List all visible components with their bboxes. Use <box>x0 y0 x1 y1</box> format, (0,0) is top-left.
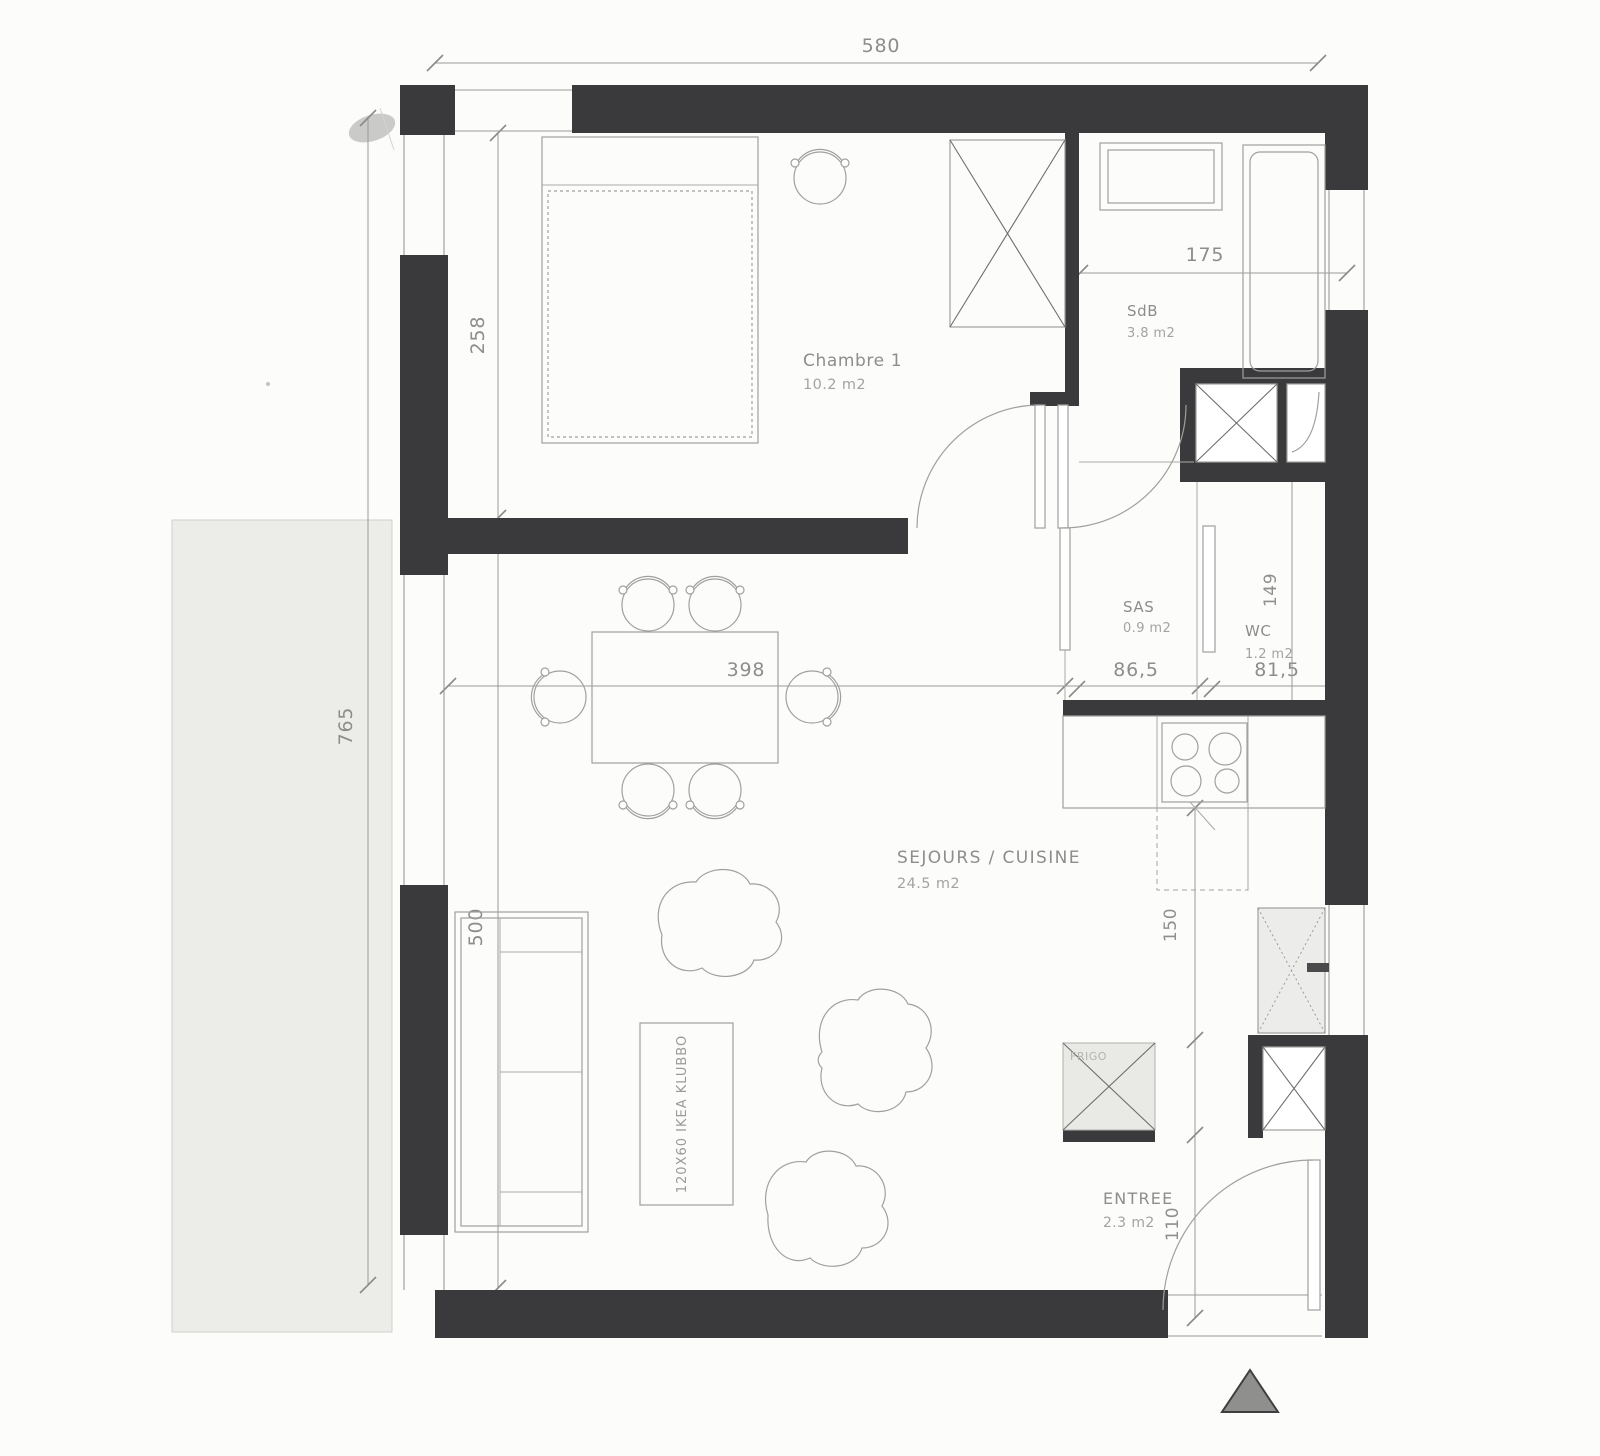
wardrobe <box>950 140 1065 327</box>
door-handle-icon <box>1307 963 1329 972</box>
scan-smudge <box>266 108 399 386</box>
plant-blob <box>658 870 781 977</box>
dining-chairs <box>531 576 840 818</box>
coffee-table: 120X60 IKEA KLUBBO <box>640 1023 733 1205</box>
dim-bathroom-width: 175 <box>1186 244 1225 266</box>
living-door-leaf <box>1060 528 1070 650</box>
dim-outdoor-height: 765 <box>335 707 357 746</box>
dim-entry-depth: 110 <box>1163 1207 1183 1241</box>
chair <box>619 764 677 819</box>
room-area-sdb: 3.8 m2 <box>1127 326 1175 341</box>
fridge-label: FRIGO <box>1070 1050 1107 1063</box>
room-label-sejour: SEJOURS / CUISINE <box>897 848 1081 868</box>
entry-door-leaf <box>1308 1160 1320 1310</box>
bathroom-door-leaf <box>1058 405 1068 528</box>
dim-wc-depth: 149 <box>1261 573 1281 607</box>
chair <box>619 576 677 631</box>
floor-plan-drawing: 580 765 258 500 175 398 86,5 81,5 149 <box>0 0 1600 1456</box>
plant-blob <box>818 989 932 1111</box>
entry-shaft <box>1263 1047 1325 1130</box>
cooktop <box>1162 723 1247 830</box>
bedroom-door-leaf <box>1035 405 1045 528</box>
sofa <box>455 912 588 1232</box>
dim-bedroom-depth: 258 <box>467 316 489 355</box>
room-label-entree: ENTREE <box>1103 1189 1173 1208</box>
kitchen-counter <box>1063 716 1325 890</box>
decor-blobs <box>658 870 932 1267</box>
terrace-slab <box>172 520 392 1332</box>
bedroom-door-swing <box>917 405 1040 528</box>
dim-living-depth: 500 <box>465 908 487 947</box>
room-area-sejour: 24.5 m2 <box>897 876 960 892</box>
room-label-chambre1: Chambre 1 <box>803 351 902 371</box>
dim-kitchen-run: 150 <box>1161 908 1181 942</box>
room-area-entree: 2.3 m2 <box>1103 1215 1155 1231</box>
floor-plan-page: 580 765 258 500 175 398 86,5 81,5 149 <box>0 0 1600 1456</box>
entry-door-swing <box>1163 1160 1313 1310</box>
dim-living-width: 398 <box>727 659 766 681</box>
chair <box>686 576 744 631</box>
bathroom-door-swing <box>1063 405 1186 528</box>
coffee-table-label: 120X60 IKEA KLUBBO <box>675 1035 690 1193</box>
dining-table <box>592 632 778 763</box>
fridge: FRIGO <box>1063 1043 1155 1130</box>
plant-blob <box>766 1151 888 1266</box>
chair <box>786 668 841 726</box>
washing-machine <box>1258 908 1329 1033</box>
dim-overall-width: 580 <box>862 35 901 57</box>
service-shafts <box>1196 384 1325 462</box>
dim-sas-width: 86,5 <box>1113 659 1159 681</box>
washbasin <box>1100 143 1222 210</box>
room-area-chambre1: 10.2 m2 <box>803 377 866 393</box>
chair <box>531 668 586 726</box>
bathtub <box>1243 145 1325 378</box>
interior-walls <box>448 133 1325 1142</box>
bed <box>542 137 758 443</box>
room-area-sas: 0.9 m2 <box>1123 621 1171 636</box>
chair <box>686 764 744 819</box>
wc-door-leaf <box>1203 526 1215 652</box>
north-arrow-icon <box>1222 1370 1278 1412</box>
dim-wc-width: 81,5 <box>1254 659 1300 681</box>
bedroom-chair <box>791 149 849 204</box>
room-label-sdb: SdB <box>1127 302 1158 320</box>
dishwasher-dashed <box>1157 808 1248 890</box>
room-label-wc: WC <box>1245 622 1272 640</box>
room-label-sas: SAS <box>1123 598 1154 616</box>
room-area-wc: 1.2 m2 <box>1245 647 1293 662</box>
dimension-lines: 580 765 258 500 175 398 86,5 81,5 149 <box>335 35 1355 1326</box>
